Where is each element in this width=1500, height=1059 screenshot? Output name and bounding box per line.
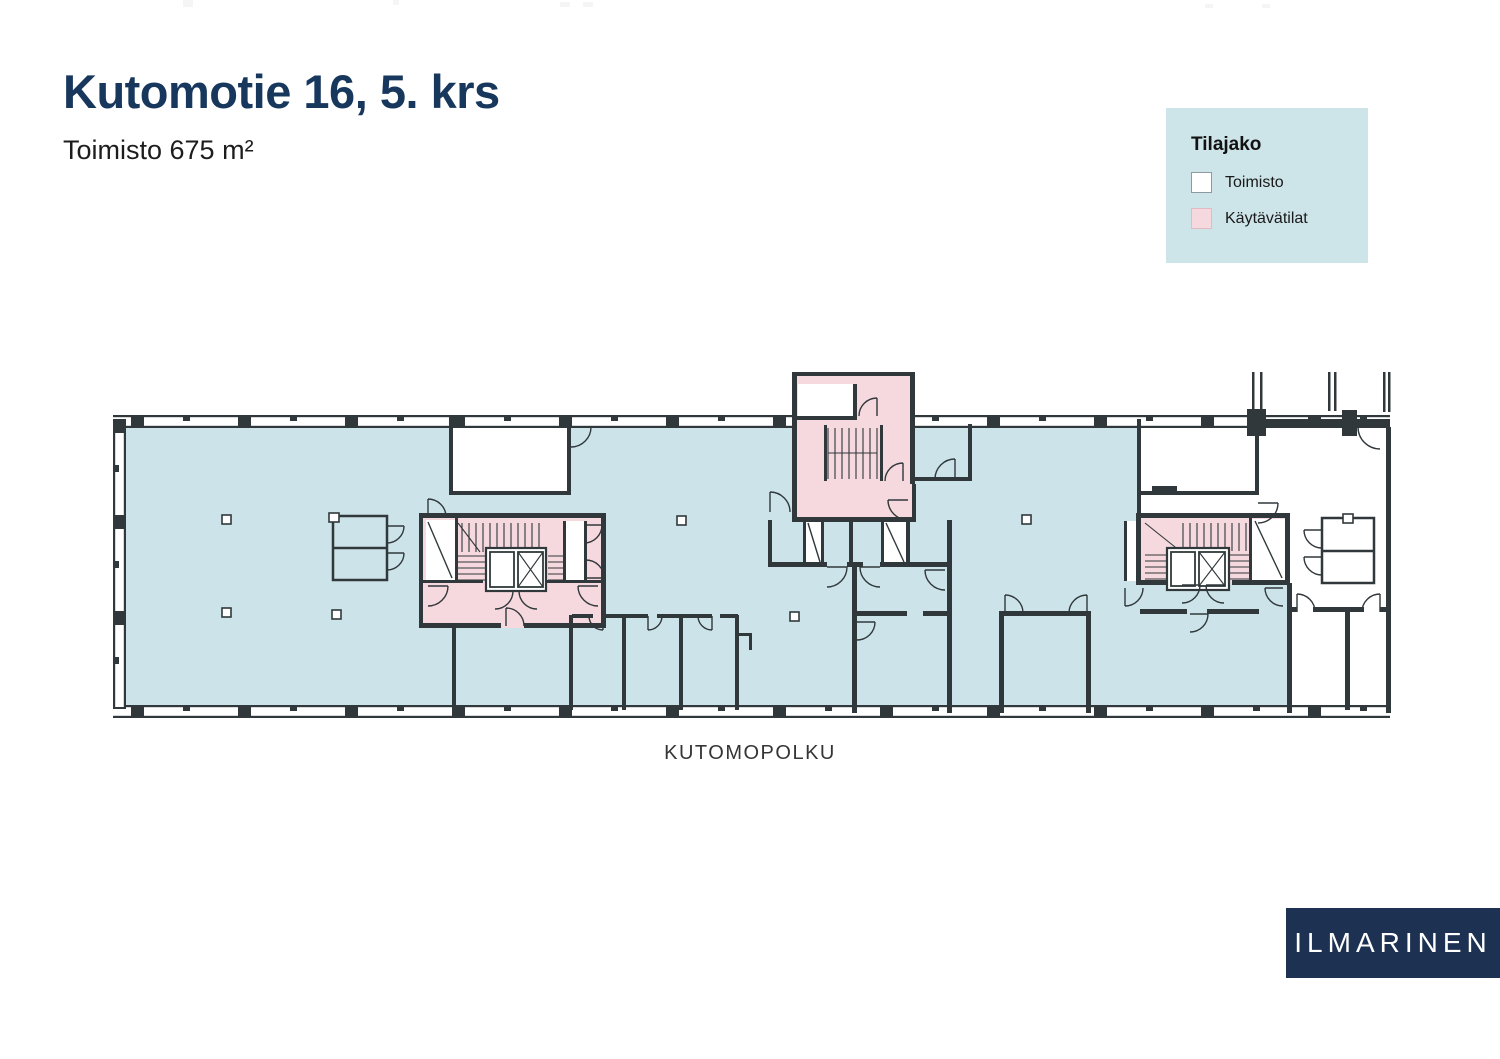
slide: Kutomotie 16, 5. krs Toimisto 675 m² Til… bbox=[0, 0, 1500, 1059]
ilmarinen-logo: ILMARINEN bbox=[1286, 908, 1500, 978]
street-label: KUTOMOPOLKU bbox=[565, 742, 935, 765]
floor-plan bbox=[0, 0, 1500, 1059]
top-edge-marks bbox=[183, 0, 1270, 8]
ilmarinen-logo-text: ILMARINEN bbox=[1294, 927, 1491, 959]
office-areas bbox=[117, 419, 1292, 713]
